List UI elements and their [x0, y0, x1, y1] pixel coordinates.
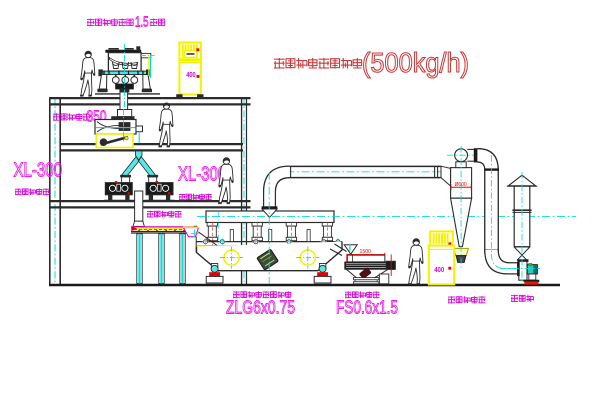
- svg-text:Ø600: Ø600: [455, 182, 467, 188]
- svg-text:(500kg/h): (500kg/h): [362, 47, 469, 78]
- svg-text:400: 400: [434, 265, 444, 274]
- svg-text:FS0.6x1.5: FS0.6x1.5: [336, 297, 398, 318]
- svg-text:ZLG6x0.75: ZLG6x0.75: [226, 297, 295, 318]
- svg-text:1500: 1500: [360, 249, 372, 255]
- svg-text:XL-300: XL-300: [14, 160, 63, 182]
- svg-text:1.5: 1.5: [135, 15, 149, 31]
- svg-text:400: 400: [186, 70, 196, 79]
- svg-text:XL-300: XL-300: [178, 164, 226, 186]
